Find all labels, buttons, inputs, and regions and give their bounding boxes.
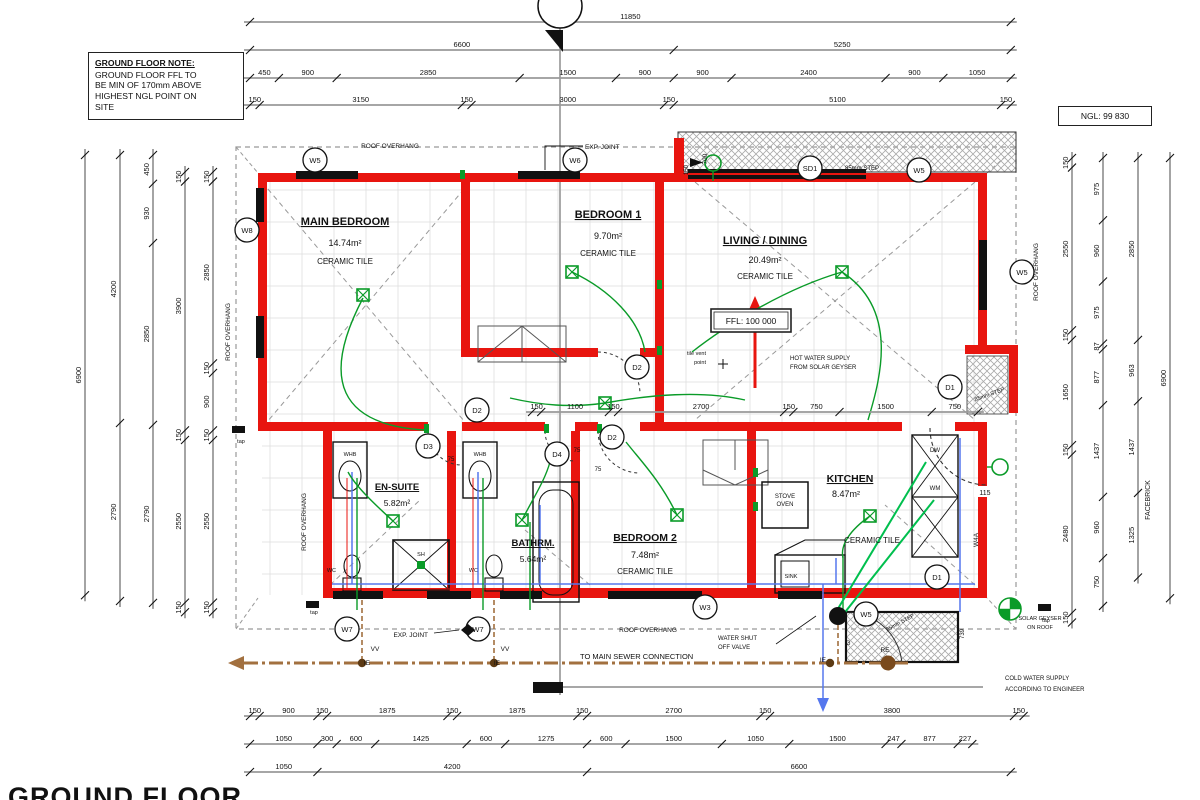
wall-segment — [462, 422, 545, 431]
room-finish-bedroom1: CERAMIC TILE — [580, 249, 636, 258]
window-bar — [778, 591, 822, 599]
dimension-value: 227 — [959, 734, 972, 743]
plan-line — [776, 616, 816, 644]
inspection-eye-label: IE — [820, 657, 827, 664]
rodding-eye-icon — [881, 656, 896, 671]
dimension-value: 2850 — [1127, 241, 1136, 258]
tap-label: tap — [237, 439, 245, 445]
dimension-value: 900 — [282, 706, 295, 715]
marker-label: D2 — [607, 433, 617, 442]
window-bar — [500, 591, 542, 599]
switch-icon — [753, 502, 758, 511]
sink-label: SINK — [785, 574, 798, 580]
room-area-kitchen: 8.47m² — [832, 489, 860, 499]
electrical-wire — [605, 394, 745, 403]
dimension-value: 2790 — [109, 504, 118, 521]
room-label-ensuite: EN-SUITE — [375, 482, 419, 493]
window-bar — [427, 591, 471, 599]
room-label-main-bedroom: MAIN BEDROOM — [301, 216, 390, 228]
room-finish-bedroom2: CERAMIC TILE — [617, 567, 673, 576]
switch-icon — [753, 468, 758, 477]
dimension-value: 150 — [576, 706, 589, 715]
room-label-bedroom1: BEDROOM 1 — [575, 209, 642, 221]
dimension-value: 2550 — [174, 513, 183, 530]
electrical-wire — [626, 442, 677, 515]
dimension-value: 150 — [174, 429, 183, 442]
window-bar — [518, 171, 580, 179]
rodding-eye-label: RE — [880, 647, 890, 654]
dimension-value: 960 — [1092, 521, 1101, 534]
washing-machine-label: WM — [930, 486, 941, 492]
dimension-value: 1050 — [747, 734, 764, 743]
marker-label: D2 — [472, 406, 482, 415]
dimension-value: 3000 — [559, 95, 576, 104]
dimension-value: 150 — [202, 429, 211, 442]
dimension-value: 600 — [350, 734, 363, 743]
plan-path — [999, 609, 1010, 620]
roof-overhang-label: ROOF OVERHANG — [361, 143, 419, 150]
room-area-bedroom1: 9.70m² — [594, 231, 622, 241]
dimension-value: 3900 — [174, 298, 183, 315]
tap-icon — [1038, 604, 1051, 611]
marker-label: W5 — [860, 610, 871, 619]
tap-icon — [232, 426, 245, 433]
section-marker-bubble — [538, 0, 582, 28]
dim-700-label: 700 — [702, 153, 709, 164]
dimension-value: 450 — [258, 68, 271, 77]
dimension-value: 4200 — [444, 762, 461, 771]
wall-segment — [978, 425, 987, 598]
window-bar — [333, 591, 383, 599]
dimension-value: 600 — [600, 734, 613, 743]
vent-valve-label: VV — [371, 646, 380, 653]
marker-label: W6 — [569, 156, 580, 165]
inspection-eye-icon — [826, 659, 834, 667]
dimension-value: 6900 — [1159, 370, 1168, 387]
switch-icon — [544, 424, 549, 433]
exp-joint-label: EXP. JOINT — [393, 632, 428, 639]
dimension-value: 750 — [810, 402, 823, 411]
dimension-value: 150 — [1061, 329, 1070, 342]
marker-label: W5 — [1016, 268, 1027, 277]
external-light-icon — [992, 459, 1008, 475]
plan-path — [1010, 598, 1021, 609]
dimension-value: 600 — [480, 734, 493, 743]
wall-segment — [674, 138, 684, 174]
marker-label: D2 — [632, 363, 642, 372]
supply-line-bright — [842, 500, 934, 616]
dimension-value: 877 — [1092, 371, 1101, 384]
switch-icon — [657, 346, 662, 355]
dimension-value: 2550 — [202, 513, 211, 530]
inspection-eye-label: IE — [364, 660, 371, 667]
gully-label: G — [845, 640, 850, 647]
dimension-value: 150 — [202, 171, 211, 184]
marker-label: SD1 — [803, 164, 818, 173]
dimension-value: 1500 — [829, 734, 846, 743]
dimension-value: 2550 — [1061, 241, 1070, 258]
dimension-value: 150 — [249, 95, 262, 104]
dimension-value: 1275 — [538, 734, 555, 743]
dimension-value: 2790 — [142, 506, 151, 523]
sewer-note-label: TO MAIN SEWER CONNECTION — [580, 652, 693, 661]
dimension-value: 900 — [639, 68, 652, 77]
cold-water-label: COLD WATER SUPPLY — [1005, 676, 1069, 682]
dimension-value: 5250 — [834, 40, 851, 49]
whb-label: WHB — [474, 452, 487, 458]
wall-segment — [1009, 345, 1018, 413]
dimension-value: 930 — [142, 207, 151, 220]
dimension-value: 1050 — [275, 762, 292, 771]
window-bar — [608, 591, 702, 599]
dimension-value: 11850 — [620, 12, 640, 21]
dimension-value: 150 — [1000, 95, 1013, 104]
dim-75-label: 75 — [574, 448, 581, 454]
roof-overhang-label: ROOF OVERHANG — [301, 493, 308, 551]
note-title: GROUND FLOOR NOTE: — [95, 58, 237, 69]
dimension-value: 150 — [1061, 157, 1070, 170]
dimension-value: 6900 — [74, 367, 83, 384]
roof-overhang-label: ROOF OVERHANG — [225, 303, 232, 361]
dimension-value: 1500 — [665, 734, 682, 743]
window-bar — [256, 188, 264, 222]
marker-label: W3 — [699, 603, 710, 612]
dimension-value: 975 — [1092, 183, 1101, 196]
ground-floor-note: GROUND FLOOR NOTE: GROUND FLOOR FFL TO B… — [88, 52, 244, 120]
cold-water-arrow-icon — [817, 698, 829, 712]
dim-739-label: 739 — [960, 628, 966, 639]
marker-label: W7 — [341, 625, 352, 634]
dimension-value: 1875 — [509, 706, 526, 715]
inspection-eye-label: IE — [494, 660, 501, 667]
dimension-value: 1325 — [1127, 527, 1136, 544]
dimension-value: 150 — [202, 601, 211, 614]
tile-vent-label: tile vent — [687, 351, 706, 357]
exp-joint-label: EXP. JOINT — [585, 144, 620, 151]
gully-icon — [829, 607, 847, 625]
window-bar — [979, 240, 987, 310]
dimension-value: 1425 — [413, 734, 430, 743]
room-label-bedroom2: BEDROOM 2 — [613, 532, 677, 544]
dimension-value: 150 — [1061, 611, 1070, 624]
sliding-door-bar — [688, 175, 866, 179]
marker-label: D1 — [945, 383, 955, 392]
electrical-wire — [510, 398, 605, 405]
room-label-bathroom: BATHRM. — [511, 538, 554, 549]
dim-115-label: 115 — [979, 490, 990, 497]
room-label-kitchen: KITCHEN — [827, 473, 874, 485]
wall-segment — [461, 348, 598, 357]
room-finish-main-bedroom: CERAMIC TILE — [317, 257, 373, 266]
dimension-value: 900 — [908, 68, 921, 77]
shower-drain-icon — [417, 561, 425, 569]
room-area-living-dining: 20.49m² — [748, 255, 781, 265]
dimension-value: 150 — [663, 95, 676, 104]
dimension-value: 900 — [302, 68, 315, 77]
dimension-value: 150 — [174, 601, 183, 614]
dimension-value: 750 — [949, 402, 962, 411]
dimension-value: 87 — [1092, 342, 1101, 350]
dimension-value: 877 — [923, 734, 936, 743]
tap-label: tap — [310, 610, 318, 616]
dimension-value: 247 — [887, 734, 900, 743]
tile-vent-label: point — [694, 360, 706, 366]
note-line: HIGHEST NGL POINT ON — [95, 91, 237, 102]
whb-label: WHB — [344, 452, 357, 458]
dimension-value: 2850 — [202, 264, 211, 281]
solar-label: ON ROOF — [1027, 625, 1053, 631]
dimension-value: 150 — [783, 402, 796, 411]
marker-label: D3 — [423, 442, 433, 451]
dimension-value: 5100 — [829, 95, 846, 104]
drawing-title: GROUND FLOOR — [8, 782, 242, 800]
stove-label: OVEN — [776, 502, 793, 508]
dimension-value: 150 — [607, 402, 620, 411]
stove-label: STOVE — [775, 494, 795, 500]
ffl-label: FFL: 100 000 — [726, 316, 777, 326]
dimension-value: 963 — [1127, 364, 1136, 377]
roof-corner-dash — [236, 147, 258, 173]
wc-label: WC — [327, 568, 336, 574]
floor-plan-page: WHBWHBWCWCSHSTOVEOVENSINKDWWM11850660052… — [0, 0, 1200, 800]
marker-label: D1 — [932, 573, 942, 582]
note-line: GROUND FLOOR FFL TO — [95, 70, 237, 81]
dimension-value: 1500 — [559, 68, 576, 77]
room-area-bathroom: 5.64m² — [520, 554, 547, 564]
dimension-value: 900 — [202, 395, 211, 408]
marker-label: D4 — [552, 450, 562, 459]
dimension-value: 2850 — [420, 68, 437, 77]
dimension-value: 150 — [174, 171, 183, 184]
dimension-value: 900 — [696, 68, 709, 77]
switch-icon — [657, 280, 662, 289]
dimension-value: 1050 — [969, 68, 986, 77]
dimension-value: 3800 — [884, 706, 901, 715]
dimension-value: 1100 — [567, 402, 583, 411]
switch-icon — [424, 424, 429, 433]
dimension-value: 150 — [1061, 444, 1070, 457]
dimension-value: 1437 — [1092, 443, 1101, 460]
room-area-main-bedroom: 14.74m² — [328, 238, 361, 248]
marker-label: W5 — [913, 166, 924, 175]
note-line: BE MIN OF 170mm ABOVE — [95, 80, 237, 91]
room-finish-kitchen: CERAMIC TILE — [844, 536, 900, 545]
dimension-value: 300 — [321, 734, 334, 743]
dimension-value: 6600 — [791, 762, 808, 771]
cold-water-label: ACCORDING TO ENGINEER — [1005, 687, 1085, 693]
wall-segment — [640, 422, 902, 431]
dimension-value: 150 — [460, 95, 473, 104]
dimension-value: 150 — [1013, 706, 1026, 715]
dimension-value: 3150 — [352, 95, 369, 104]
dimension-value: 2400 — [800, 68, 817, 77]
dimension-value: 150 — [530, 402, 543, 411]
window-bar — [296, 171, 358, 179]
roof-hip-line — [330, 500, 420, 585]
dimension-value: 2850 — [142, 326, 151, 343]
wall-segment — [955, 422, 987, 431]
entry-step-hatch — [967, 356, 1008, 414]
wall-segment — [575, 422, 598, 431]
electrical-wire — [348, 472, 393, 521]
dimension-value: 2480 — [1061, 525, 1070, 542]
dimension-value: 1875 — [379, 706, 396, 715]
sewer-direction-arrow-icon — [228, 656, 244, 670]
dishwasher-label: DW — [930, 448, 940, 454]
room-area-bedroom2: 7.48m² — [631, 550, 659, 560]
dimension-value: 750 — [1092, 576, 1101, 589]
tap-icon — [306, 601, 319, 608]
vent-valve-label: VV — [501, 646, 510, 653]
shutoff-label: OFF VALVE — [718, 645, 750, 651]
dimension-value: 6600 — [454, 40, 471, 49]
room-area-ensuite: 5.82m² — [384, 498, 411, 508]
floor-plan-drawing: WHBWHBWCWCSHSTOVEOVENSINKDWWM11850660052… — [0, 0, 1200, 800]
dimension-value: 1050 — [275, 734, 292, 743]
note-line: SITE — [95, 102, 237, 113]
plan-path — [703, 470, 768, 485]
shower-label: SH — [417, 552, 425, 558]
whb-fixture — [463, 442, 497, 498]
room-label-living-dining: LIVING / DINING — [723, 235, 807, 247]
hot-water-label: HOT WATER SUPPLY — [790, 356, 850, 362]
dimension-value: 1437 — [1127, 439, 1136, 456]
marker-label: W8 — [241, 226, 252, 235]
dimension-value: 450 — [142, 163, 151, 176]
dimension-value: 2700 — [693, 402, 710, 411]
dimension-value: 150 — [316, 706, 329, 715]
window-bar — [256, 316, 264, 358]
wall-segment — [461, 182, 470, 357]
step-label: 85mm STEP — [845, 166, 879, 172]
dim-75-label: 75 — [595, 467, 602, 473]
ngl-level-box: NGL: 99 830 — [1058, 106, 1152, 126]
dimension-value: 150 — [249, 706, 262, 715]
roof-corner-dash — [236, 598, 258, 629]
dim-150-label: 150 — [684, 164, 690, 175]
dim-75-label: 75 — [448, 457, 455, 463]
dimension-value: 2700 — [665, 706, 682, 715]
room-finish-living-dining: CERAMIC TILE — [737, 272, 793, 281]
dimension-value: 975 — [1092, 306, 1101, 319]
whb-basin-icon — [469, 461, 491, 491]
wall-segment — [258, 422, 428, 431]
switch-icon — [460, 170, 465, 179]
roof-overhang-label: ROOF OVERHANG — [619, 627, 677, 634]
shutoff-label: WATER SHUT — [718, 636, 757, 642]
dimension-value: 4200 — [109, 281, 118, 298]
dimension-value: 150 — [202, 362, 211, 375]
plan-line — [434, 630, 459, 633]
dimension-value: 960 — [1092, 245, 1101, 258]
section-marker-base — [533, 682, 563, 693]
dimension-value: 1650 — [1061, 384, 1070, 401]
electrical-wire — [572, 272, 645, 352]
solar-label: SOLAR GEYSER — [1018, 616, 1061, 622]
marker-label: W5 — [309, 156, 320, 165]
dimension-value: 150 — [759, 706, 772, 715]
w4a-label: W4A — [973, 532, 980, 547]
wall-segment — [655, 182, 664, 431]
hot-water-label: FROM SOLAR GEYSER — [790, 365, 857, 371]
dimension-value: 150 — [446, 706, 459, 715]
electrical-wire — [842, 272, 881, 420]
dimension-value: 1500 — [877, 402, 894, 411]
roof-overhang-label: ROOF OVERHANG — [1033, 243, 1040, 301]
facebrick-label: FACEBRICK — [1145, 480, 1152, 520]
